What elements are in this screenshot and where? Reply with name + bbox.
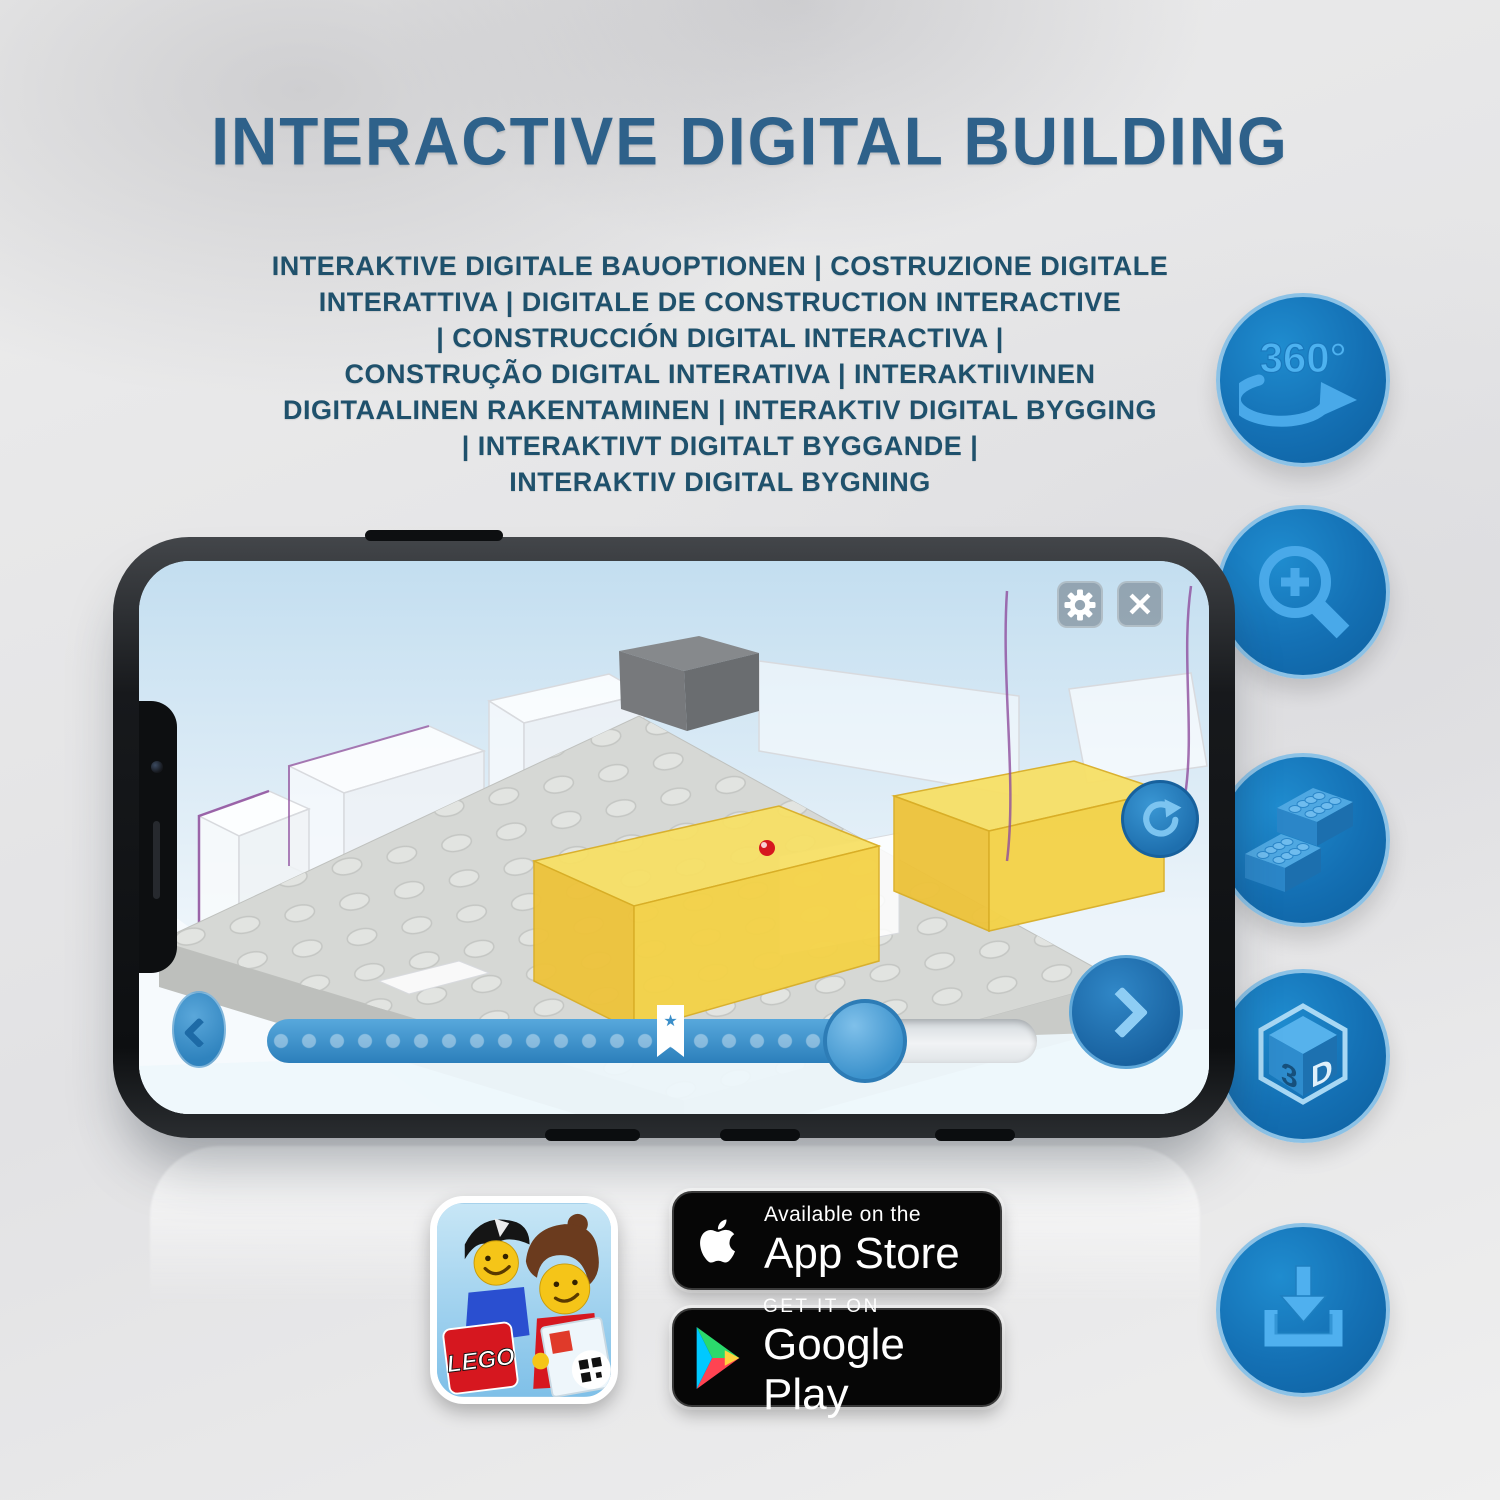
subtitle-line: DIGITAALINEN RAKENTAMINEN | INTERAKTIV D… — [30, 392, 1410, 428]
app-store-label: App Store — [764, 1229, 960, 1279]
download-icon — [1243, 1252, 1363, 1368]
subtitle-line: | CONSTRUCCIÓN DIGITAL INTERACTIVA | — [30, 320, 1410, 356]
google-play-icon — [694, 1325, 742, 1391]
3d-cube-icon: 3 D — [1243, 996, 1363, 1116]
app-store-tagline: Available on the — [764, 1203, 960, 1227]
zoom-in-icon — [1245, 534, 1361, 650]
rotate-button[interactable] — [1121, 780, 1199, 858]
phone-port — [545, 1129, 640, 1141]
phone-mockup: ✕ ★ — [113, 537, 1235, 1138]
google-play-tagline: GET IT ON — [763, 1296, 1000, 1318]
360-label: 360° — [1260, 334, 1347, 381]
subtitle-line: INTERAKTIV DIGITAL BYGNING — [30, 464, 1410, 500]
app-store-badge[interactable]: Available on the App Store — [672, 1191, 1002, 1290]
phone-notch — [139, 701, 177, 973]
feature-zoom — [1216, 505, 1390, 679]
lego-app-art: LEGO — [437, 1203, 611, 1397]
rotate-icon — [1137, 796, 1183, 842]
build-progress-slider[interactable]: ★ — [267, 1019, 1037, 1063]
google-play-label: Google Play — [763, 1320, 1000, 1420]
phone-port — [935, 1129, 1015, 1141]
page-title: INTERACTIVE DIGITAL BUILDING — [0, 102, 1500, 180]
lego-app-icon[interactable]: LEGO — [430, 1196, 618, 1404]
subtitle-line: | INTERAKTIVT DIGITALT BYGGANDE | — [30, 428, 1410, 464]
poster: INTERACTIVE DIGITAL BUILDING INTERAKTIVE… — [0, 0, 1500, 1500]
lego-bricks-icon — [1243, 780, 1363, 900]
360-rotation-icon: 360° — [1239, 320, 1367, 440]
subtitle-line: INTERAKTIVE DIGITALE BAUOPTIONEN | COSTR… — [30, 248, 1410, 284]
speaker-icon — [153, 821, 160, 899]
close-icon: ✕ — [1126, 588, 1154, 621]
feature-360-rotation: 360° — [1216, 293, 1390, 467]
phone-side-button — [365, 530, 503, 541]
slider-progress-fill — [267, 1019, 879, 1063]
slider-handle[interactable] — [823, 999, 907, 1083]
chevron-right-icon — [1096, 986, 1148, 1038]
subtitle-line: INTERATTIVA | DIGITALE DE CONSTRUCTION I… — [30, 284, 1410, 320]
feature-download — [1216, 1223, 1390, 1397]
star-icon: ★ — [663, 1014, 677, 1030]
subtitle-line: CONSTRUÇÃO DIGITAL INTERATIVA | INTERAKT… — [30, 356, 1410, 392]
apple-icon — [694, 1211, 744, 1271]
phone-port — [720, 1129, 800, 1141]
camera-icon — [151, 761, 163, 773]
feature-bricks — [1216, 753, 1390, 927]
feature-3d: 3 D — [1216, 969, 1390, 1143]
multilingual-subtitle: INTERAKTIVE DIGITALE BAUOPTIONEN | COSTR… — [30, 248, 1410, 500]
google-play-badge[interactable]: GET IT ON Google Play — [672, 1308, 1002, 1407]
previous-step-button[interactable] — [172, 991, 226, 1068]
gear-icon — [1063, 588, 1097, 622]
close-button[interactable]: ✕ — [1117, 581, 1163, 627]
phone-screen[interactable]: ✕ ★ — [139, 561, 1209, 1114]
chevron-left-icon — [183, 1017, 214, 1048]
next-step-button[interactable] — [1069, 955, 1183, 1069]
settings-button[interactable] — [1057, 581, 1103, 628]
